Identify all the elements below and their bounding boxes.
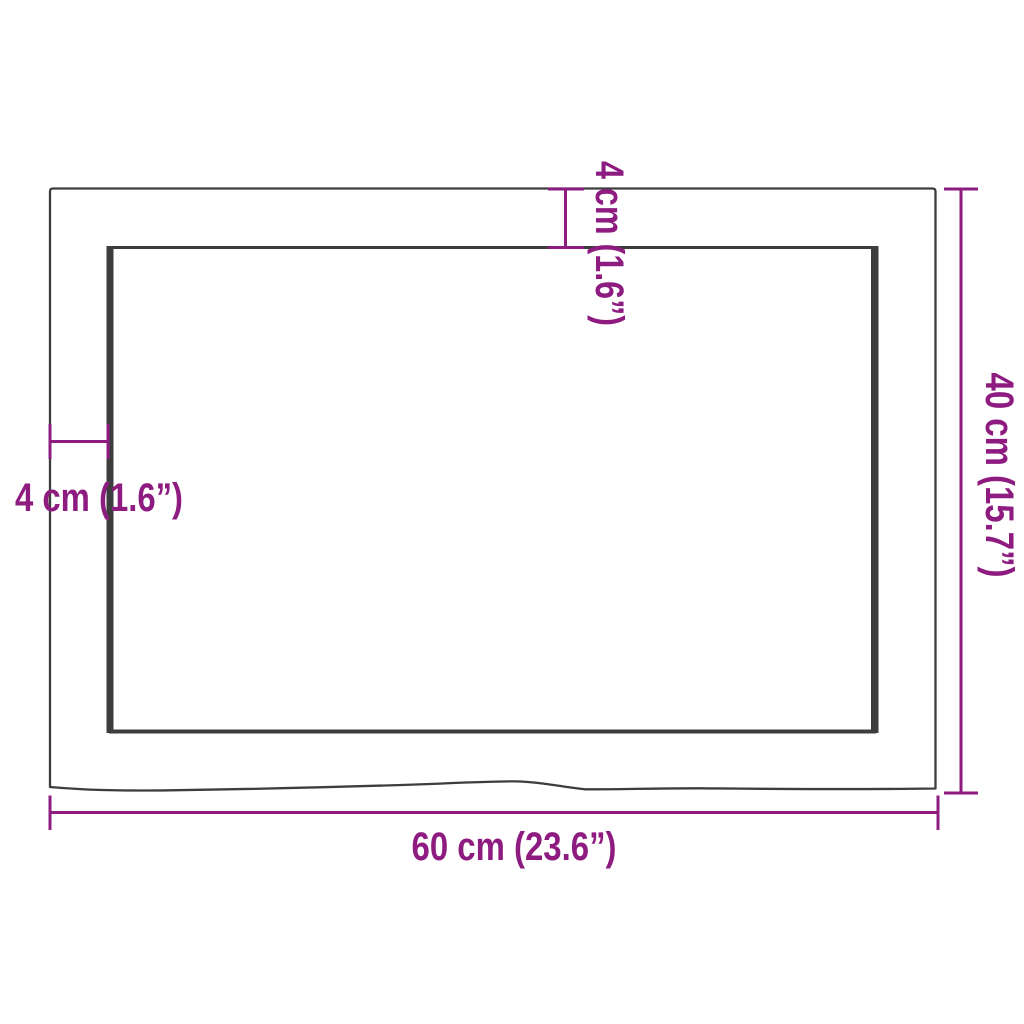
svg-text:4 cm (1.6”): 4 cm (1.6”) bbox=[587, 161, 631, 326]
svg-text:4 cm (1.6”): 4 cm (1.6”) bbox=[15, 476, 183, 520]
svg-text:60 cm (23.6”): 60 cm (23.6”) bbox=[412, 825, 617, 869]
svg-text:40 cm (15.7”): 40 cm (15.7”) bbox=[977, 373, 1021, 578]
